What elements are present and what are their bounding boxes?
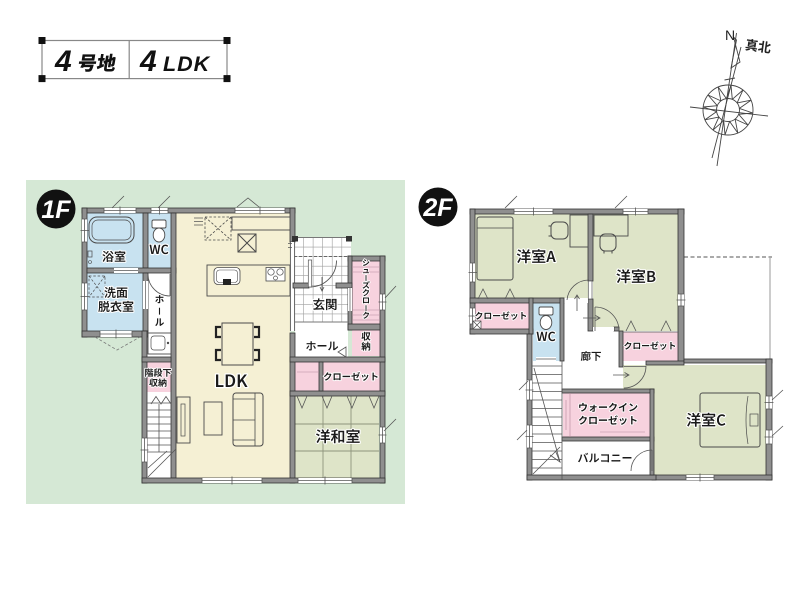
svg-text:2F: 2F bbox=[422, 194, 453, 222]
svg-text:1F: 1F bbox=[41, 196, 71, 224]
svg-text:4: 4 bbox=[54, 45, 72, 78]
svg-text:LDK: LDK bbox=[163, 52, 211, 76]
svg-text:N: N bbox=[725, 27, 735, 43]
svg-text:4: 4 bbox=[139, 45, 157, 78]
